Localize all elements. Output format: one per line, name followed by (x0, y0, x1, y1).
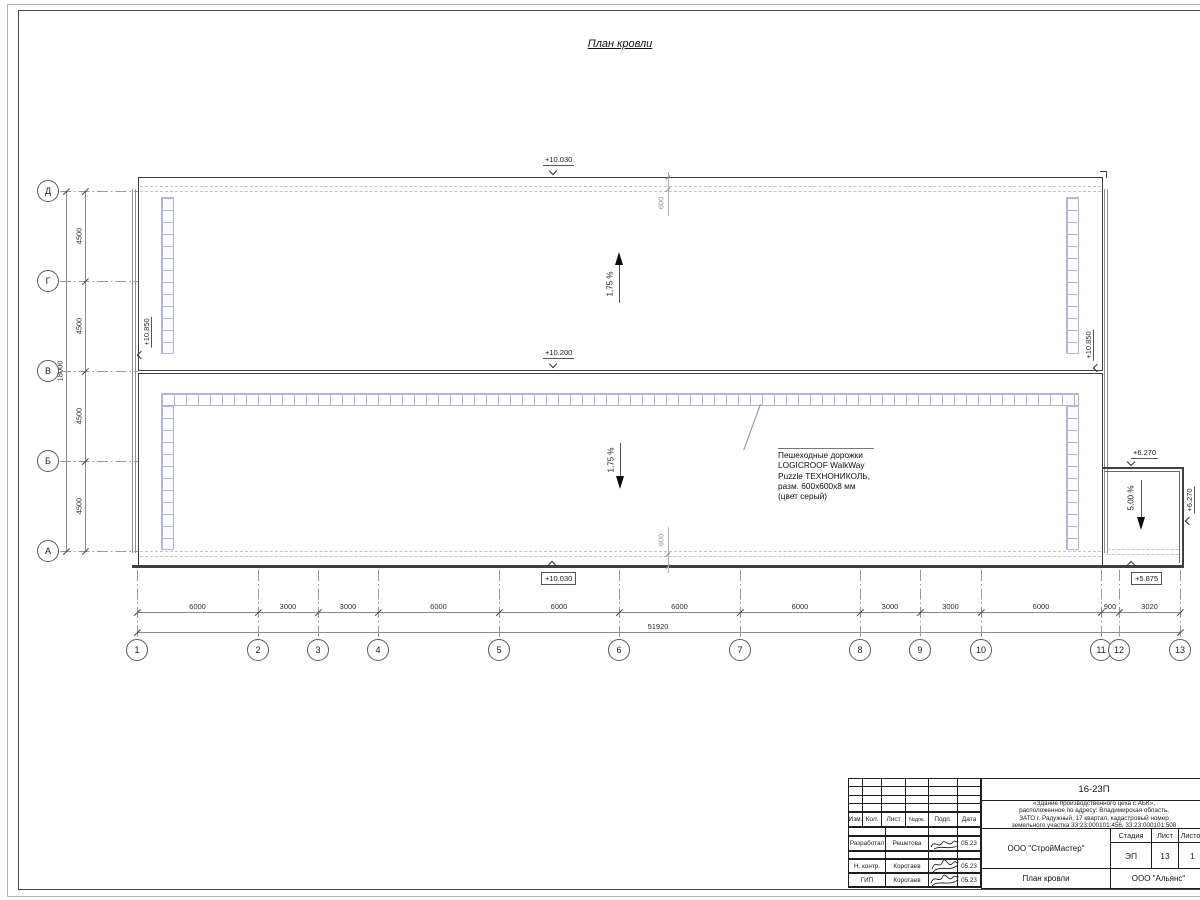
column-axis-bubble: 3 (307, 639, 329, 661)
column-axis-bubble: 8 (849, 639, 871, 661)
dimension-label: 900 (1104, 602, 1117, 611)
column-axis-bubble: 9 (909, 639, 931, 661)
revision-grid-cell (906, 796, 929, 804)
sheets-value: 1 (1190, 851, 1195, 861)
column-axis-bubble: 2 (247, 639, 269, 661)
titleblock-role-row: Н. контр. Коротаев 05.23 (848, 859, 982, 874)
column-axis-bubble: 1 (126, 639, 148, 661)
dimension-label: 6000 (551, 602, 568, 611)
signature (929, 836, 959, 852)
revision-grid-cell (958, 779, 981, 787)
role-date: 05.23 (958, 837, 981, 851)
revision-grid-cell (849, 787, 863, 795)
dimension-label: 4500 (75, 498, 84, 515)
titleblock-header-row: Изм. Кол. Лист №док. Подп. Дата (848, 812, 982, 828)
revision-grid-cell (958, 804, 981, 812)
titleblock-col-label: Кол. (863, 813, 882, 827)
dimension-label: 4500 (75, 228, 84, 245)
role-name: Решетова (886, 837, 929, 851)
grid-witness-line (258, 570, 259, 639)
sheets-label: Листов (1181, 831, 1200, 840)
revision-grid-cell (906, 787, 929, 795)
revision-grid-cell (882, 787, 906, 795)
revision-grid-cell (849, 796, 863, 804)
grid-axis-line (60, 281, 138, 282)
revision-grid-cell (929, 796, 958, 804)
titleblock-role-row: ГИП Коротаев 05.23 (848, 873, 982, 888)
titleblock-role-row: Разработал Решетова 05.23 (848, 836, 982, 852)
column-axis-bubble: 10 (970, 639, 992, 661)
revision-grid-cell (863, 787, 882, 795)
grid-witness-line (920, 570, 921, 639)
dimension-label: 6000 (671, 602, 688, 611)
revision-grid-cell (929, 779, 958, 787)
row-axis-bubble: Г (37, 270, 59, 292)
dimension-label: 3020 (1141, 602, 1158, 611)
dimension-label: 3000 (280, 602, 297, 611)
revision-grid-cell (958, 796, 981, 804)
titleblock-col-label: Подп. (929, 813, 958, 827)
grid-axis-line (60, 371, 138, 372)
grid-axis-line (60, 191, 138, 192)
dimension-label: 3000 (340, 602, 357, 611)
grid-witness-line (137, 570, 138, 639)
org2-name: ООО "Альянс" (1132, 874, 1186, 883)
column-axis-bubble: 13 (1169, 639, 1191, 661)
doc-number: 16-23П (1078, 784, 1109, 795)
grid-witness-line (860, 570, 861, 639)
column-axis-bubble: 5 (488, 639, 510, 661)
dimension-label: 6000 (792, 602, 809, 611)
dimension-label: 6000 (189, 602, 206, 611)
role-label: ГИП (849, 874, 886, 887)
row-axis-bubble: В (37, 360, 59, 382)
signature (929, 871, 959, 888)
sheet-value-cell: 13 (1151, 842, 1179, 869)
org-cell: ООО "СтройМастер" (981, 828, 1111, 869)
generated-dimension-layer: 1234567891011121360003000300060006000600… (0, 0, 1200, 900)
revision-grid-cell (929, 804, 958, 812)
revision-grid-cell (863, 796, 882, 804)
stage-value-cell: ЭП (1110, 842, 1152, 869)
revision-grid-cell (906, 804, 929, 812)
column-axis-bubble: 6 (608, 639, 630, 661)
grid-witness-line (981, 570, 982, 639)
revision-grid-cell (849, 804, 863, 812)
grid-witness-line (318, 570, 319, 639)
role-date: 05.23 (958, 860, 981, 873)
project-description-cell: «Здание производственного цеха с АБК», р… (981, 800, 1200, 829)
dimension-label: 6000 (1033, 602, 1050, 611)
column-axis-bubble: 7 (729, 639, 751, 661)
grid-witness-line (499, 570, 500, 639)
titleblock-col-label: №док. (906, 813, 929, 827)
revision-grid-cell (863, 779, 882, 787)
revision-grid-cell (882, 804, 906, 812)
sheets-value-cell: 1 (1178, 842, 1200, 869)
stage-value: ЭП (1125, 851, 1137, 861)
dimension-label: 6000 (430, 602, 447, 611)
role-label: Разработал (849, 837, 886, 851)
row-axis-bubble: Б (37, 450, 59, 472)
titleblock-col-label: Лист (882, 813, 906, 827)
sheet-title-text: План кровли (1022, 874, 1069, 883)
project-description-line: ЗАТО г. Радужный, 17 квартал, кадастровы… (1012, 815, 1176, 822)
role-name: Коротаев (886, 860, 929, 873)
revision-grid-cell (849, 779, 863, 787)
row-axis-bubble: Д (37, 180, 59, 202)
row-axis-bubble: А (37, 540, 59, 562)
doc-number-cell: 16-23П (981, 778, 1200, 801)
role-label: Н. контр. (849, 860, 886, 873)
org2-cell: ООО "Альянс" (1110, 868, 1200, 889)
titleblock-col-label: Изм. (849, 813, 863, 827)
column-axis-bubble: 12 (1108, 639, 1130, 661)
titleblock-revision-grid (848, 778, 982, 813)
stage-label-cell: Стадия (1110, 828, 1152, 843)
revision-grid-cell (958, 787, 981, 795)
dimension-label: 3000 (882, 602, 899, 611)
dimension-label: 4500 (75, 408, 84, 425)
dimension-label: 4500 (75, 318, 84, 335)
grid-witness-line (1101, 570, 1102, 639)
revision-grid-cell (929, 787, 958, 795)
revision-grid-cell (906, 779, 929, 787)
grid-axis-line (60, 461, 138, 462)
sheet-title-cell: План кровли (981, 868, 1111, 889)
sheets-label-cell: Листов (1178, 828, 1200, 843)
revision-grid-cell (863, 804, 882, 812)
blueprint-sheet: { "page": { "title": "План кровли" }, "a… (0, 0, 1200, 900)
grid-witness-line (378, 570, 379, 639)
stage-label: Стадия (1119, 831, 1144, 840)
grid-witness-line (619, 570, 620, 639)
sheet-label: Лист (1157, 831, 1173, 840)
role-name: Коротаев (886, 874, 929, 887)
grid-witness-line (1119, 570, 1120, 639)
grid-witness-line (1180, 570, 1181, 639)
column-axis-bubble: 4 (367, 639, 389, 661)
grid-witness-line (740, 570, 741, 639)
grid-axis-line (60, 551, 138, 552)
revision-grid-cell (882, 779, 906, 787)
titleblock-col-label: Дата (958, 813, 981, 827)
org-name: ООО "СтройМастер" (1007, 844, 1084, 853)
sheet-value: 13 (1160, 851, 1169, 861)
sheet-label-cell: Лист (1151, 828, 1179, 843)
project-description-line: расположенное по адресу: Владимирская об… (1012, 807, 1176, 814)
dimension-label: 3000 (942, 602, 959, 611)
role-date: 05.23 (958, 874, 981, 887)
revision-grid-cell (882, 796, 906, 804)
